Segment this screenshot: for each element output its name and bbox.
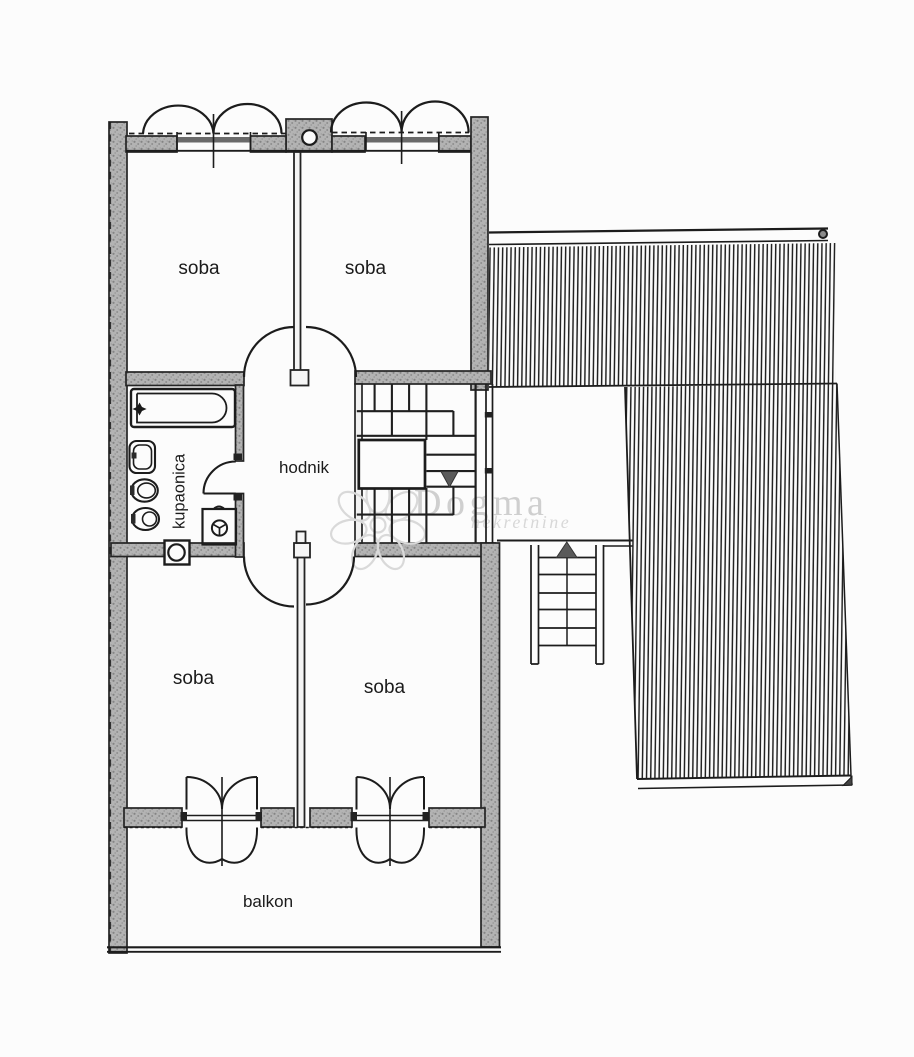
svg-text:balkon: balkon [243,892,293,911]
svg-text:soba: soba [364,677,406,698]
svg-text:kupaonica: kupaonica [171,453,189,529]
svg-text:soba: soba [178,258,220,279]
svg-text:hodnik: hodnik [279,458,330,477]
svg-text:soba: soba [173,668,215,689]
svg-text:soba: soba [345,258,387,279]
